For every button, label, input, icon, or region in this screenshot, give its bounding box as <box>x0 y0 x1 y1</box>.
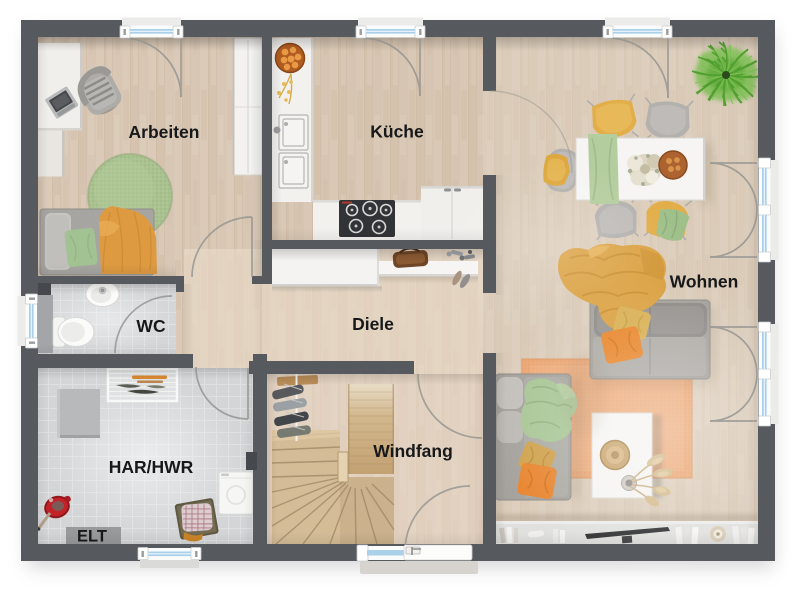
svg-text:HAR/HWR: HAR/HWR <box>109 457 194 477</box>
svg-text:Küche: Küche <box>370 122 424 142</box>
svg-text:Arbeiten: Arbeiten <box>129 122 200 142</box>
svg-text:Windfang: Windfang <box>373 441 453 461</box>
svg-text:Diele: Diele <box>352 314 394 334</box>
svg-text:WC: WC <box>136 316 166 336</box>
svg-text:Wohnen: Wohnen <box>670 272 739 292</box>
